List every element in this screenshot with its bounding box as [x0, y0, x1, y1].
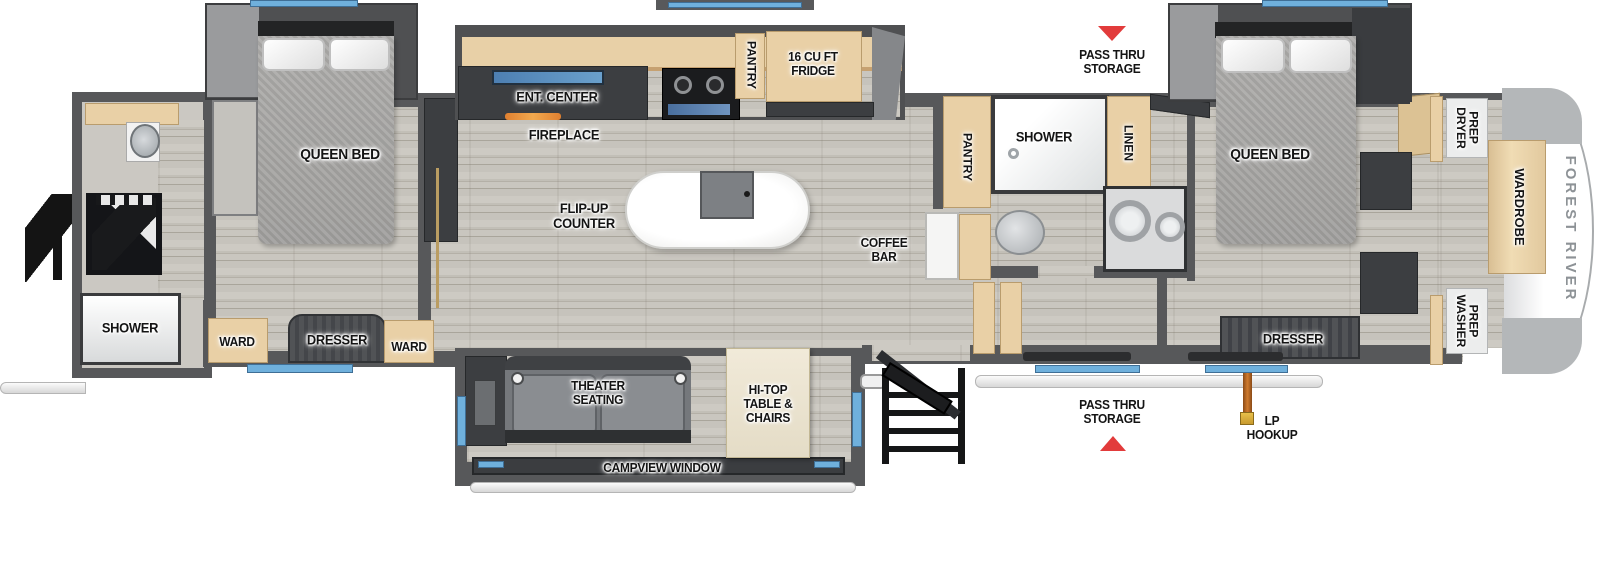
right-bed-slide-wedge: [1170, 5, 1218, 99]
rear-rack-bar: [53, 196, 62, 280]
entry-pillar-1: [973, 282, 995, 354]
pass-thru-bottom-label: PASS THRU STORAGE: [1079, 398, 1145, 426]
mid-shower-label: SHOWER: [1016, 129, 1072, 144]
loft-stairs-rail: [96, 195, 154, 205]
linen-label: LINEN: [1122, 125, 1135, 161]
kitchen-slide-window: [668, 2, 802, 8]
washer-door: [1109, 200, 1151, 242]
hitop-label: HI-TOP TABLE & CHAIRS: [743, 383, 792, 425]
right-bed-pillow-1: [1221, 38, 1285, 73]
right-bedroom-cab-2: [1360, 252, 1418, 314]
right-bed-pillow-2: [1289, 38, 1352, 73]
living-slide-window-left: [457, 396, 466, 446]
theater-seat-base: [505, 430, 691, 443]
theater-seating-label: THEATER SEATING: [571, 379, 625, 407]
left-dresser-label: DRESSER: [307, 332, 367, 347]
campview-window-label: CAMPVIEW WINDOW: [603, 461, 720, 475]
living-left-cabinet-slot: [474, 380, 496, 426]
awning-rail-2: [1188, 352, 1283, 361]
bottom-window-1: [1035, 365, 1140, 373]
left-bed-pillow-1: [262, 38, 325, 71]
right-dresser-label: DRESSER: [1263, 331, 1323, 346]
bath-left-wall: [933, 95, 943, 209]
pass-thru-bottom-arrow: [1100, 436, 1126, 451]
bedroom-door: [436, 168, 439, 308]
living-slide-window-right: [852, 392, 862, 447]
rear-bumper: [0, 382, 86, 394]
ent-center-label: ENT. CENTER: [516, 89, 597, 104]
toilet: [995, 210, 1045, 255]
hall-wall: [1157, 278, 1167, 358]
left-ward-1-label: WARD: [219, 335, 254, 349]
left-bed-pillow-2: [329, 38, 390, 71]
brand-cap-text: FOREST RIVER: [1562, 156, 1578, 303]
bedroom-tv-cabinet: [424, 98, 458, 242]
wardrobe-label: WARDROBE: [1512, 168, 1526, 245]
entry-steps-rail-right: [958, 368, 965, 464]
fireplace-label: FIREPLACE: [529, 127, 600, 142]
right-bedroom-cab-1: [1360, 152, 1412, 210]
shower-head-icon: [1008, 148, 1019, 159]
kitchen-pantry-label: PANTRY: [745, 41, 758, 89]
awning-rail-1: [1023, 352, 1131, 361]
lp-pipe: [1243, 366, 1252, 418]
stove-burner-1: [674, 76, 692, 94]
rv-floorplan: SHOWER QUEEN BED WARD DRESSER WARD ENT. …: [0, 0, 1600, 569]
lp-hookup-label: LP HOOKUP: [1247, 414, 1298, 442]
left-bedroom-bottom-window: [247, 364, 353, 373]
left-queen-bed-label: QUEEN BED: [300, 147, 380, 163]
awning-tube-right: [975, 375, 1323, 388]
entry-steps-rail-left: [882, 368, 889, 464]
left-bed-slide-wedge: [207, 5, 259, 97]
washer-prep-label: WASHER PREP: [1454, 295, 1479, 348]
coffee-bar-unit: [925, 212, 959, 280]
bath-door-opening: [1038, 266, 1094, 278]
bottom-window-2: [1205, 365, 1288, 373]
cap-band-bottom: [1502, 318, 1582, 374]
right-bed-cabinet: [1352, 8, 1410, 104]
pass-thru-top-label: PASS THRU STORAGE: [1079, 48, 1145, 76]
right-queen-bed-label: QUEEN BED: [1230, 147, 1310, 163]
tv-icon: [492, 70, 604, 85]
right-bed-slide-window: [1262, 0, 1388, 7]
fridge-label: 16 CU FT FRIDGE: [788, 50, 838, 78]
bath-pantry-label: PANTRY: [961, 133, 974, 181]
rear-rack: [25, 194, 77, 282]
kitchen-dark-counter: [766, 102, 874, 117]
pass-thru-top-arrow: [1098, 26, 1126, 41]
dryer-prep-strip: [1430, 96, 1443, 162]
rear-shower-label: SHOWER: [102, 320, 158, 335]
stove-oven: [668, 104, 730, 115]
rear-bath-floor: [158, 120, 204, 300]
flip-up-counter-label: FLIP-UP COUNTER: [553, 201, 615, 231]
coffee-bar-label: COFFEE BAR: [861, 236, 908, 264]
coffee-bar-back: [959, 214, 991, 280]
left-ward-2-label: WARD: [391, 340, 426, 354]
stove-burner-2: [706, 76, 724, 94]
washer-prep-strip: [1430, 295, 1443, 365]
left-bedroom-closet: [212, 100, 258, 216]
awning-tube-bottom: [470, 482, 856, 493]
island-faucet: [744, 191, 750, 197]
entry-pillar-2: [1000, 282, 1022, 354]
cupholder-2: [674, 372, 687, 385]
washer-right-wall: [1187, 95, 1195, 281]
fireplace-glow: [505, 113, 561, 120]
campview-window-blue-left: [478, 461, 504, 468]
loft-stairs-diagonal: [92, 198, 156, 270]
left-bed-slide-window: [250, 0, 358, 7]
dryer-door: [1155, 212, 1185, 242]
campview-window-blue-right: [814, 461, 840, 468]
cap-band-top: [1502, 88, 1582, 144]
cupholder-1: [511, 372, 524, 385]
rear-bath-sink-bowl: [130, 124, 160, 158]
dryer-prep-label: DRYER PREP: [1454, 107, 1479, 149]
